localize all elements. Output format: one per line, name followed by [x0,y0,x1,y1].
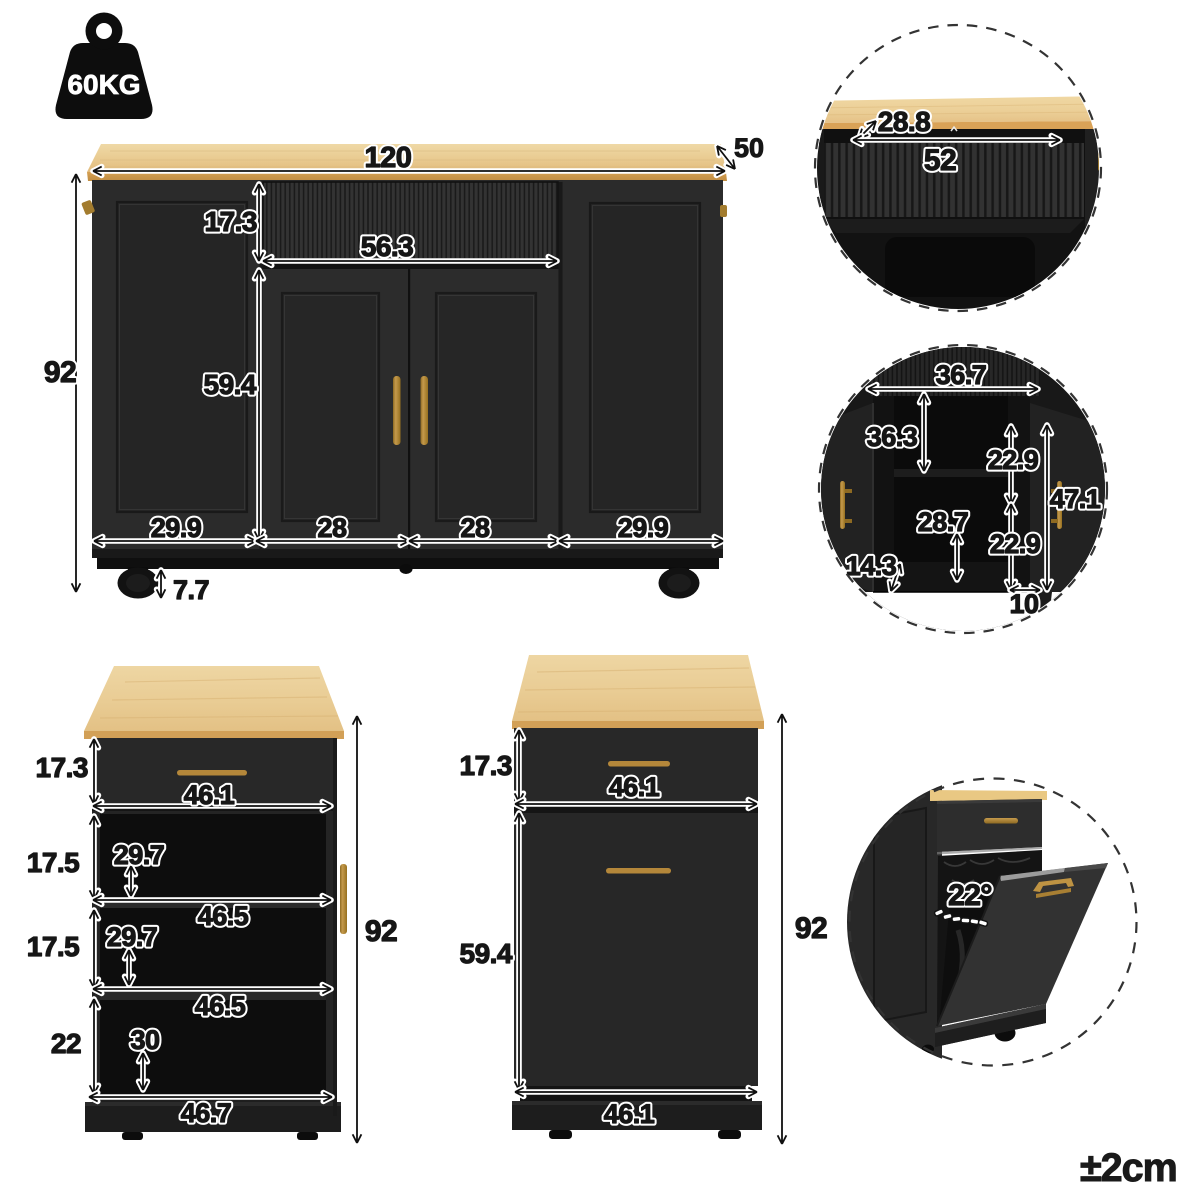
svg-text:17.5: 17.5 [27,931,80,962]
svg-text:17.3: 17.3 [36,752,89,783]
svg-text:22°: 22° [948,879,992,912]
svg-text:30: 30 [130,1025,159,1055]
svg-text:29.9: 29.9 [151,513,202,543]
svg-text:59.4: 59.4 [204,369,257,400]
svg-text:28.7: 28.7 [918,507,969,537]
svg-text:±2cm: ±2cm [1080,1146,1177,1190]
svg-text:14.3: 14.3 [846,551,897,581]
svg-text:17.5: 17.5 [27,847,80,878]
svg-text:60KG: 60KG [67,69,140,100]
svg-text:50: 50 [734,133,764,163]
svg-text:29.7: 29.7 [114,840,165,870]
svg-text:92: 92 [795,912,827,945]
svg-text:10: 10 [1009,589,1038,619]
svg-text:29.9: 29.9 [618,513,669,543]
svg-text:29.7: 29.7 [107,922,158,952]
svg-text:46.1: 46.1 [604,1099,655,1129]
svg-text:59.4: 59.4 [460,938,513,969]
svg-text:46.5: 46.5 [198,901,249,931]
svg-text:22.9: 22.9 [988,445,1039,475]
svg-text:36.7: 36.7 [936,360,987,390]
svg-text:46.1: 46.1 [609,772,660,802]
svg-text:92: 92 [365,915,397,948]
svg-text:52: 52 [924,144,956,177]
svg-text:120: 120 [365,142,412,174]
svg-text:22.9: 22.9 [990,529,1041,559]
svg-text:17.3: 17.3 [460,750,513,781]
svg-text:92: 92 [44,356,76,389]
svg-text:7.7: 7.7 [173,575,209,605]
svg-text:56.3: 56.3 [361,231,414,262]
svg-text:28.8: 28.8 [878,106,931,137]
svg-text:46.1: 46.1 [184,780,235,810]
svg-text:17.3: 17.3 [205,206,258,237]
svg-text:28: 28 [317,513,347,543]
svg-text:46.7: 46.7 [181,1098,232,1128]
svg-text:36.3: 36.3 [867,422,918,452]
svg-text:47.1: 47.1 [1050,484,1101,514]
svg-text:22: 22 [51,1028,81,1059]
svg-text:46.5: 46.5 [195,991,246,1021]
svg-text:28: 28 [460,513,490,543]
